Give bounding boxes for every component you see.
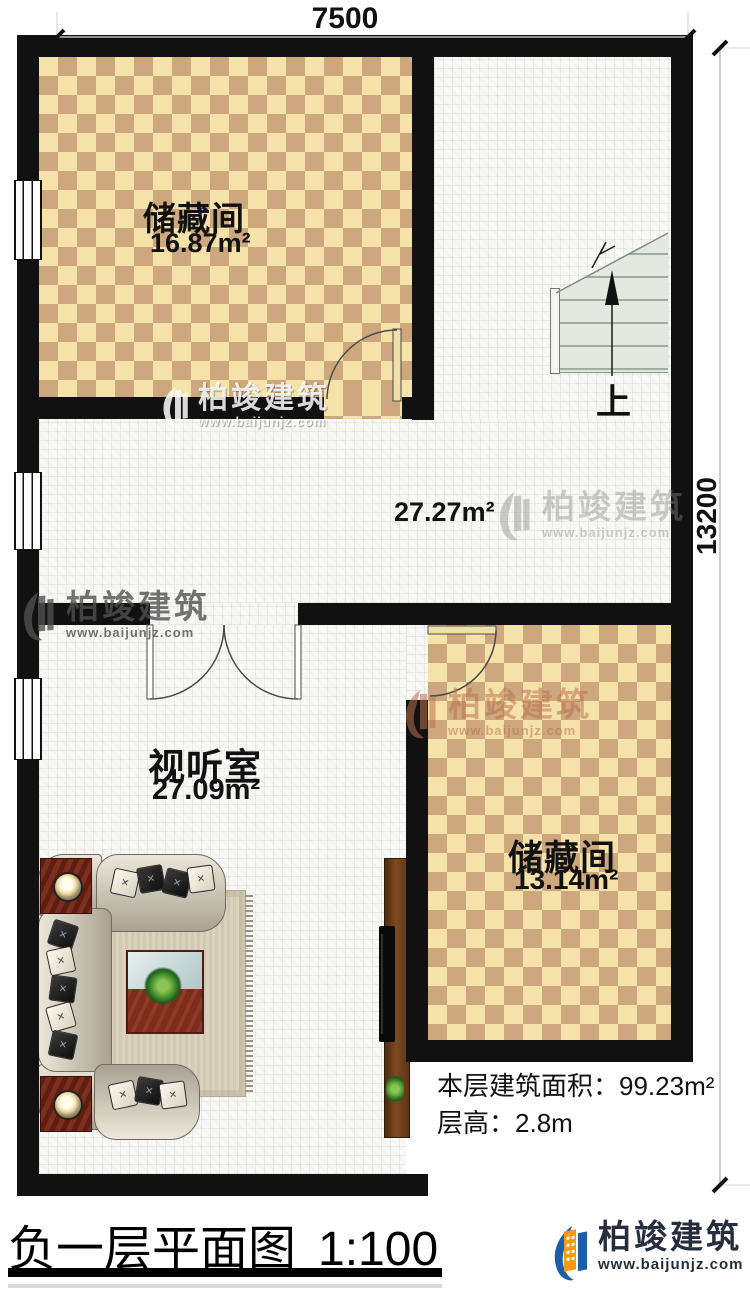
storage-top-door-gap-floor — [324, 397, 402, 419]
pillow — [108, 1080, 139, 1111]
table-plant — [144, 966, 182, 1006]
floor-area-value: 99.23m² — [619, 1071, 714, 1101]
wall-storage-right-left — [406, 700, 428, 1040]
window-symbol — [14, 472, 42, 550]
baijun-logo-icon — [550, 1218, 592, 1288]
window-symbol — [14, 180, 42, 260]
stairs-up-label: 上 — [596, 374, 631, 425]
wall-storage-top-bottom-b — [402, 397, 434, 419]
floor-plan-sheet: 7500 13200 储藏间 16.87m² 27.27m² 视听室 27.09… — [0, 0, 750, 1297]
dimension-line-right — [713, 41, 750, 1192]
lamp — [53, 1090, 83, 1120]
storage-top-area: 16.87m² — [150, 228, 251, 259]
av-room-area: 27.09m² — [152, 774, 260, 807]
title-underline-gray — [8, 1284, 442, 1288]
hall-area: 27.27m² — [394, 497, 495, 528]
floor-area-label: 本层建筑面积： — [437, 1071, 619, 1101]
wall-storage-top-right — [412, 57, 434, 420]
floor-area-line: 本层建筑面积：99.23m² — [437, 1066, 714, 1103]
hall-floor-lower — [39, 419, 671, 603]
pillow — [186, 864, 215, 893]
company-website: www.baijunjz.com — [598, 1256, 743, 1273]
lamp — [53, 872, 83, 902]
storage-right-door-gap-floor — [406, 625, 428, 700]
company-name: 柏竣建筑 — [598, 1218, 743, 1256]
floor-height-value: 2.8m — [515, 1108, 573, 1138]
stair-stringer — [550, 288, 560, 374]
pillow — [158, 1080, 187, 1109]
double-door-gap-floor — [150, 603, 298, 625]
wall-storage-top-bottom-a — [17, 397, 324, 419]
pillow — [48, 974, 77, 1003]
floor-height-label: 层高： — [437, 1108, 515, 1138]
company-logo-block: 柏竣建筑 www.baijunjz.com — [550, 1218, 743, 1288]
title-underline — [8, 1268, 442, 1277]
dimension-right-value: 13200 — [691, 466, 721, 566]
pillow — [46, 946, 77, 977]
storage-right-area: 13.14m² — [514, 864, 618, 896]
pillow — [48, 1030, 79, 1061]
wall-middle-a — [17, 603, 150, 625]
wall-middle-b — [298, 603, 693, 625]
tv — [379, 926, 395, 1042]
wall-bottom — [17, 1174, 428, 1196]
wall-top — [17, 35, 693, 57]
side-table — [40, 1076, 92, 1132]
dimension-top-value: 7500 — [300, 2, 390, 36]
window-symbol — [14, 678, 42, 760]
wall-storage-right-bottom — [406, 1040, 693, 1062]
side-table — [40, 858, 92, 914]
cabinet-plant — [386, 1072, 404, 1106]
wall-right — [671, 35, 693, 1062]
floor-height-line: 层高：2.8m — [437, 1103, 573, 1140]
